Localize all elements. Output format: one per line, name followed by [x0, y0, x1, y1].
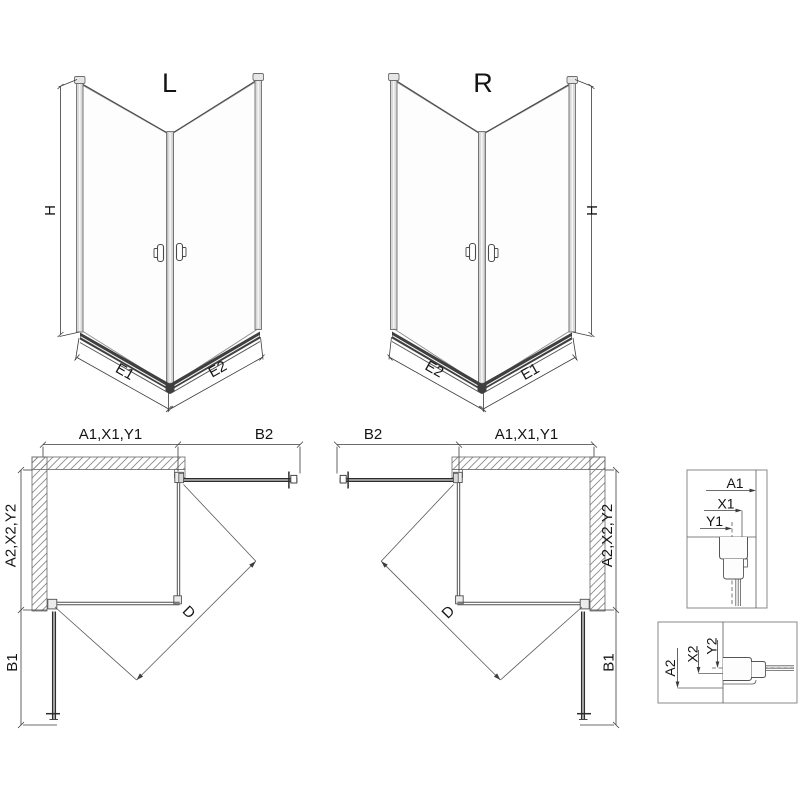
detail-h-a1-label: A1	[726, 475, 743, 491]
iso-r-title-label: R	[473, 68, 493, 98]
plan-l-side-door-dim-label: B1	[4, 653, 21, 671]
plan-l-diagonal-dim-label: D	[179, 603, 199, 623]
shower-enclosure-technical-drawing: L H E1 E2 R H E2 E1 A1,X1,Y1 B2 A2,X2,Y2…	[0, 0, 800, 800]
plan-r-side-door-dim-label: B1	[601, 653, 618, 671]
detail-h-x1-label: X1	[717, 496, 734, 512]
iso-r-height-dim-label: H	[584, 205, 601, 216]
iso-view-l: L H E1 E2	[42, 68, 265, 412]
detail-vertical-section: A2 X2 Y2	[658, 622, 797, 703]
plan-r-diagonal-dim-label: D	[439, 602, 459, 622]
wall-section-top-l	[32, 457, 185, 470]
detail-v-y2-label: Y2	[704, 637, 720, 654]
detail-v-x2-label: X2	[685, 645, 701, 662]
enclosure-iso-drawing-r	[388, 74, 595, 413]
enclosure-plan-drawing-l	[18, 442, 303, 728]
detail-h-y1-label: Y1	[706, 513, 723, 529]
plan-r-depth-dim-label: A2,X2,Y2	[599, 504, 616, 567]
wall-section-side-l	[32, 457, 47, 611]
wall-section-top-r	[452, 457, 605, 470]
detail-v-a2-label: A2	[662, 659, 678, 676]
plan-r-door-width-dim-label: B2	[364, 426, 382, 443]
iso-l-title-label: L	[162, 68, 177, 98]
plan-view-l: A1,X1,Y1 B2 A2,X2,Y2 B1 D	[3, 426, 304, 728]
plan-l-width-dim-label: A1,X1,Y1	[79, 426, 142, 443]
detail-horizontal-section: A1 X1 Y1	[687, 470, 767, 608]
plan-l-depth-dim-label: A2,X2,Y2	[3, 504, 20, 567]
enclosure-plan-drawing-r	[334, 442, 619, 728]
plan-r-width-dim-label: A1,X1,Y1	[495, 426, 558, 443]
plan-l-door-width-dim-label: B2	[255, 426, 273, 443]
iso-l-height-dim-label: H	[42, 205, 59, 216]
enclosure-iso-drawing-l	[58, 74, 265, 413]
plan-view-r: B2 A1,X1,Y1 A2,X2,Y2 B1 D	[334, 426, 619, 728]
iso-view-r: R H E2 E1	[388, 68, 602, 412]
